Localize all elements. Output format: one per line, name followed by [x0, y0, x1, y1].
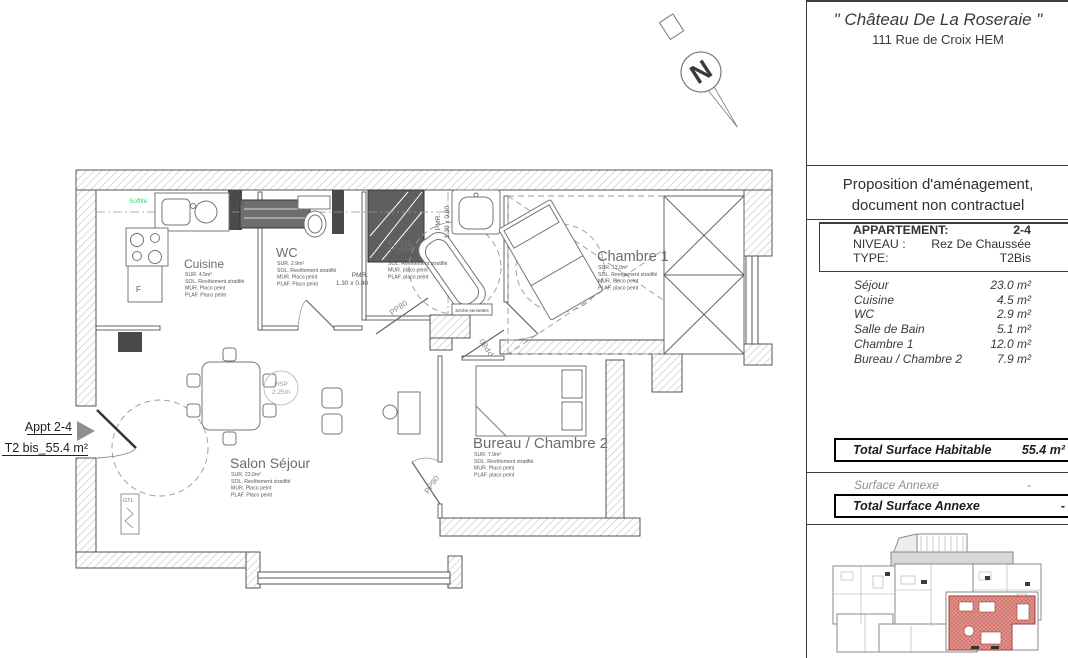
- room-label: Bureau / Chambre 2SUR. 7.9m²SOL. Revêtem…: [473, 435, 608, 478]
- room-spec-line: PLAF. placo peint: [388, 274, 429, 280]
- divider: [819, 271, 1068, 272]
- room-name: Chambre 1: [854, 337, 913, 352]
- hsp-value: 2.25m: [272, 389, 290, 396]
- room-spec-line: SUR. 2.9m²: [277, 261, 304, 267]
- room-label: WCSUR. 2.9m²SOL. Revêtement stratifiéMUR…: [276, 245, 337, 287]
- surface-row: Cuisine4.5 m²: [854, 293, 1031, 308]
- title-block-panel: " Château De La Roseraie " 111 Rue de Cr…: [806, 0, 1068, 658]
- kitchen-counter: [155, 193, 229, 231]
- room-spec-line: SUR. 23.0m²: [231, 472, 261, 478]
- notice-line: Proposition d'aménagement,: [807, 174, 1068, 195]
- room-spec-line: SOL. Revêtement stratifié: [388, 261, 448, 267]
- room-spec-line: PLAF. placo peint: [474, 472, 515, 478]
- info-value: 2-4: [1013, 223, 1031, 237]
- door-label-pp80: PP80: [388, 298, 410, 317]
- armchairs: [322, 388, 342, 434]
- washing-machine-label: ML: [236, 200, 246, 207]
- surface-row: WC2.9 m²: [854, 307, 1031, 322]
- room-name: Bureau / Chambre 2: [473, 435, 608, 452]
- door-label-text: PP80: [477, 336, 496, 358]
- bed-bureau: [476, 366, 586, 436]
- total-habitable-label: Total Surface Habitable: [853, 443, 991, 457]
- hsp-note: HSP 2.25m: [264, 371, 298, 405]
- apartment-info: APPARTEMENT:2-4 NIVEAU :Rez De Chaussée …: [853, 223, 1031, 265]
- door-label-text: PP90: [423, 474, 442, 496]
- pmr-label: PMR.: [352, 272, 368, 279]
- pmr-note-wc: PMR. 1.30 x 0.80: [336, 272, 369, 287]
- surface-annexe-label: Surface Annexe: [854, 478, 939, 492]
- apartment-ref-line2: T2 bis_55.4 m²: [5, 441, 88, 455]
- towel-dryer-box: Sèche-serviettes: [452, 304, 492, 315]
- room-spec-line: MUR. Placo peint: [185, 286, 226, 292]
- room-area: 4.5 m²: [997, 293, 1031, 308]
- info-label: APPARTEMENT:: [853, 223, 948, 237]
- door-label-pp90: PP90: [423, 474, 442, 496]
- surface-row: Séjour23.0 m²: [854, 278, 1031, 293]
- towel-dryer-label: Sèche-serviettes: [455, 308, 489, 313]
- desk: [383, 392, 420, 434]
- north-arrow-icon: N: [649, 7, 753, 138]
- mini-plan: [821, 532, 1057, 658]
- room-spec-line: MUR. Placo peint: [277, 275, 318, 281]
- divider: [807, 165, 1068, 166]
- building-address: 111 Rue de Croix HEM: [807, 32, 1068, 47]
- total-annexe-box: Total Surface Annexe -: [834, 494, 1068, 518]
- fridge: [128, 266, 162, 302]
- room-name: Chambre 1: [597, 249, 669, 265]
- wc-door: [298, 300, 334, 328]
- floorplan-sheet: Soffite ML F PMR. 1.30 x 0.80 PMR. 1.30 …: [0, 0, 1068, 658]
- divider: [807, 472, 1068, 473]
- room-name: Salle de Bain: [854, 322, 925, 337]
- room-label: Salon SéjourSUR. 23.0m²SOL. Revêtement s…: [230, 455, 311, 498]
- surface-annexe-value: -: [1027, 478, 1031, 492]
- dining-table: [187, 348, 276, 445]
- room-spec-line: SOL. Revêtement stratifié: [231, 479, 291, 485]
- room-area: 5.1 m²: [997, 322, 1031, 337]
- room-spec-line: PLAF. Placo peint: [185, 292, 227, 298]
- room-spec-line: SUR. 12.0m²: [598, 265, 628, 271]
- building-name: " Château De La Roseraie ": [807, 10, 1068, 30]
- door-label-pp80-2: PP80: [477, 336, 496, 358]
- room-name: Cuisine: [854, 293, 894, 308]
- info-label: TYPE:: [853, 251, 889, 265]
- total-habitable-value: 55.4 m²: [1022, 443, 1065, 457]
- fridge-label: F: [136, 285, 141, 294]
- room-area: 12.0 m²: [990, 337, 1031, 352]
- room-name: Bureau / Chambre 2: [854, 352, 962, 367]
- gtl-label: GTL: [123, 498, 134, 504]
- cooktop: [126, 228, 168, 266]
- apartment-ref-line1: Appt 2-4: [25, 420, 72, 434]
- room-name: WC: [276, 245, 298, 260]
- room-spec-line: SUR. 4.5m²: [185, 272, 212, 278]
- room-area: 2.9 m²: [997, 307, 1031, 322]
- surface-schedule: Séjour23.0 m² Cuisine4.5 m² WC2.9 m² Sal…: [854, 278, 1031, 366]
- hsp-label: HSP: [274, 381, 287, 388]
- room-label: CuisineSUR. 4.5m²SOL. Revêtement stratif…: [184, 257, 245, 298]
- divider: [807, 524, 1068, 525]
- room-spec-line: PLAF. Placo peint: [277, 281, 319, 287]
- room-name: SdB: [387, 238, 413, 253]
- pmr-label: PMR.: [435, 214, 442, 230]
- room-name: Séjour: [854, 278, 889, 293]
- info-label: NIVEAU :: [853, 237, 906, 251]
- apartment-ref-label: Appt 2-4 T2 bis_55.4 m²: [2, 420, 95, 456]
- notice: Proposition d'aménagement, document non …: [807, 174, 1068, 216]
- room-spec-line: MUR. Placo peint: [231, 486, 272, 492]
- info-value: T2Bis: [1000, 251, 1031, 265]
- surface-row: Bureau / Chambre 27.9 m²: [854, 352, 1031, 367]
- room-spec-line: SOL. Revêtement stratifié: [598, 272, 658, 278]
- room-spec-line: MUR. placo peint: [388, 268, 428, 274]
- room-name: Cuisine: [184, 257, 224, 271]
- room-name: Salon Séjour: [230, 455, 311, 471]
- room-spec-line: MUR. Placo peint: [474, 466, 515, 472]
- total-annexe-value: -: [1061, 499, 1065, 513]
- room-spec-line: PLAF. Placo peint: [231, 492, 273, 498]
- bed-chambre1: [499, 199, 603, 320]
- room-area: 7.9 m²: [997, 352, 1031, 367]
- room-spec-line: SOL. Revêtement stratifié: [277, 268, 337, 274]
- wardrobe: [664, 196, 744, 354]
- room-spec-line: SOL. Revêtement stratifié: [185, 279, 245, 285]
- pmr-size: 1.30 x 0.80: [336, 280, 369, 287]
- info-value: Rez De Chaussée: [931, 237, 1031, 251]
- chambre1-door: [506, 302, 538, 340]
- total-annexe-label: Total Surface Annexe: [853, 499, 980, 513]
- ref-arrow-icon: [77, 421, 95, 441]
- room-spec-line: SUR. 5.1m²: [388, 254, 415, 260]
- surface-row: Salle de Bain5.1 m²: [854, 322, 1031, 337]
- divider: [819, 222, 820, 271]
- room-spec-line: SUR. 7.9m²: [474, 452, 501, 458]
- door-label-text: PP80: [388, 298, 410, 317]
- room-area: 23.0 m²: [990, 278, 1031, 293]
- pmr-size: 1.30 x 0.80: [444, 206, 451, 239]
- soffit-label: Soffite: [129, 198, 148, 205]
- divider: [807, 219, 1068, 220]
- surface-row: Chambre 112.0 m²: [854, 337, 1031, 352]
- notice-line: document non contractuel: [807, 195, 1068, 216]
- entry-door: [97, 410, 136, 458]
- room-spec-line: SOL. Revêtement stratifié: [474, 459, 534, 465]
- room-spec-line: PLAF. placo peint: [598, 285, 639, 291]
- washbasin: [452, 190, 500, 234]
- room-name: WC: [854, 307, 874, 322]
- surface-annexe-row: Surface Annexe -: [854, 478, 1031, 492]
- room-spec-line: MUR. Placo peint: [598, 279, 639, 285]
- floor-plan: Soffite ML F PMR. 1.30 x 0.80 PMR. 1.30 …: [0, 0, 806, 658]
- total-habitable-box: Total Surface Habitable 55.4 m²: [834, 438, 1068, 462]
- gtl-box: GTL: [121, 494, 139, 534]
